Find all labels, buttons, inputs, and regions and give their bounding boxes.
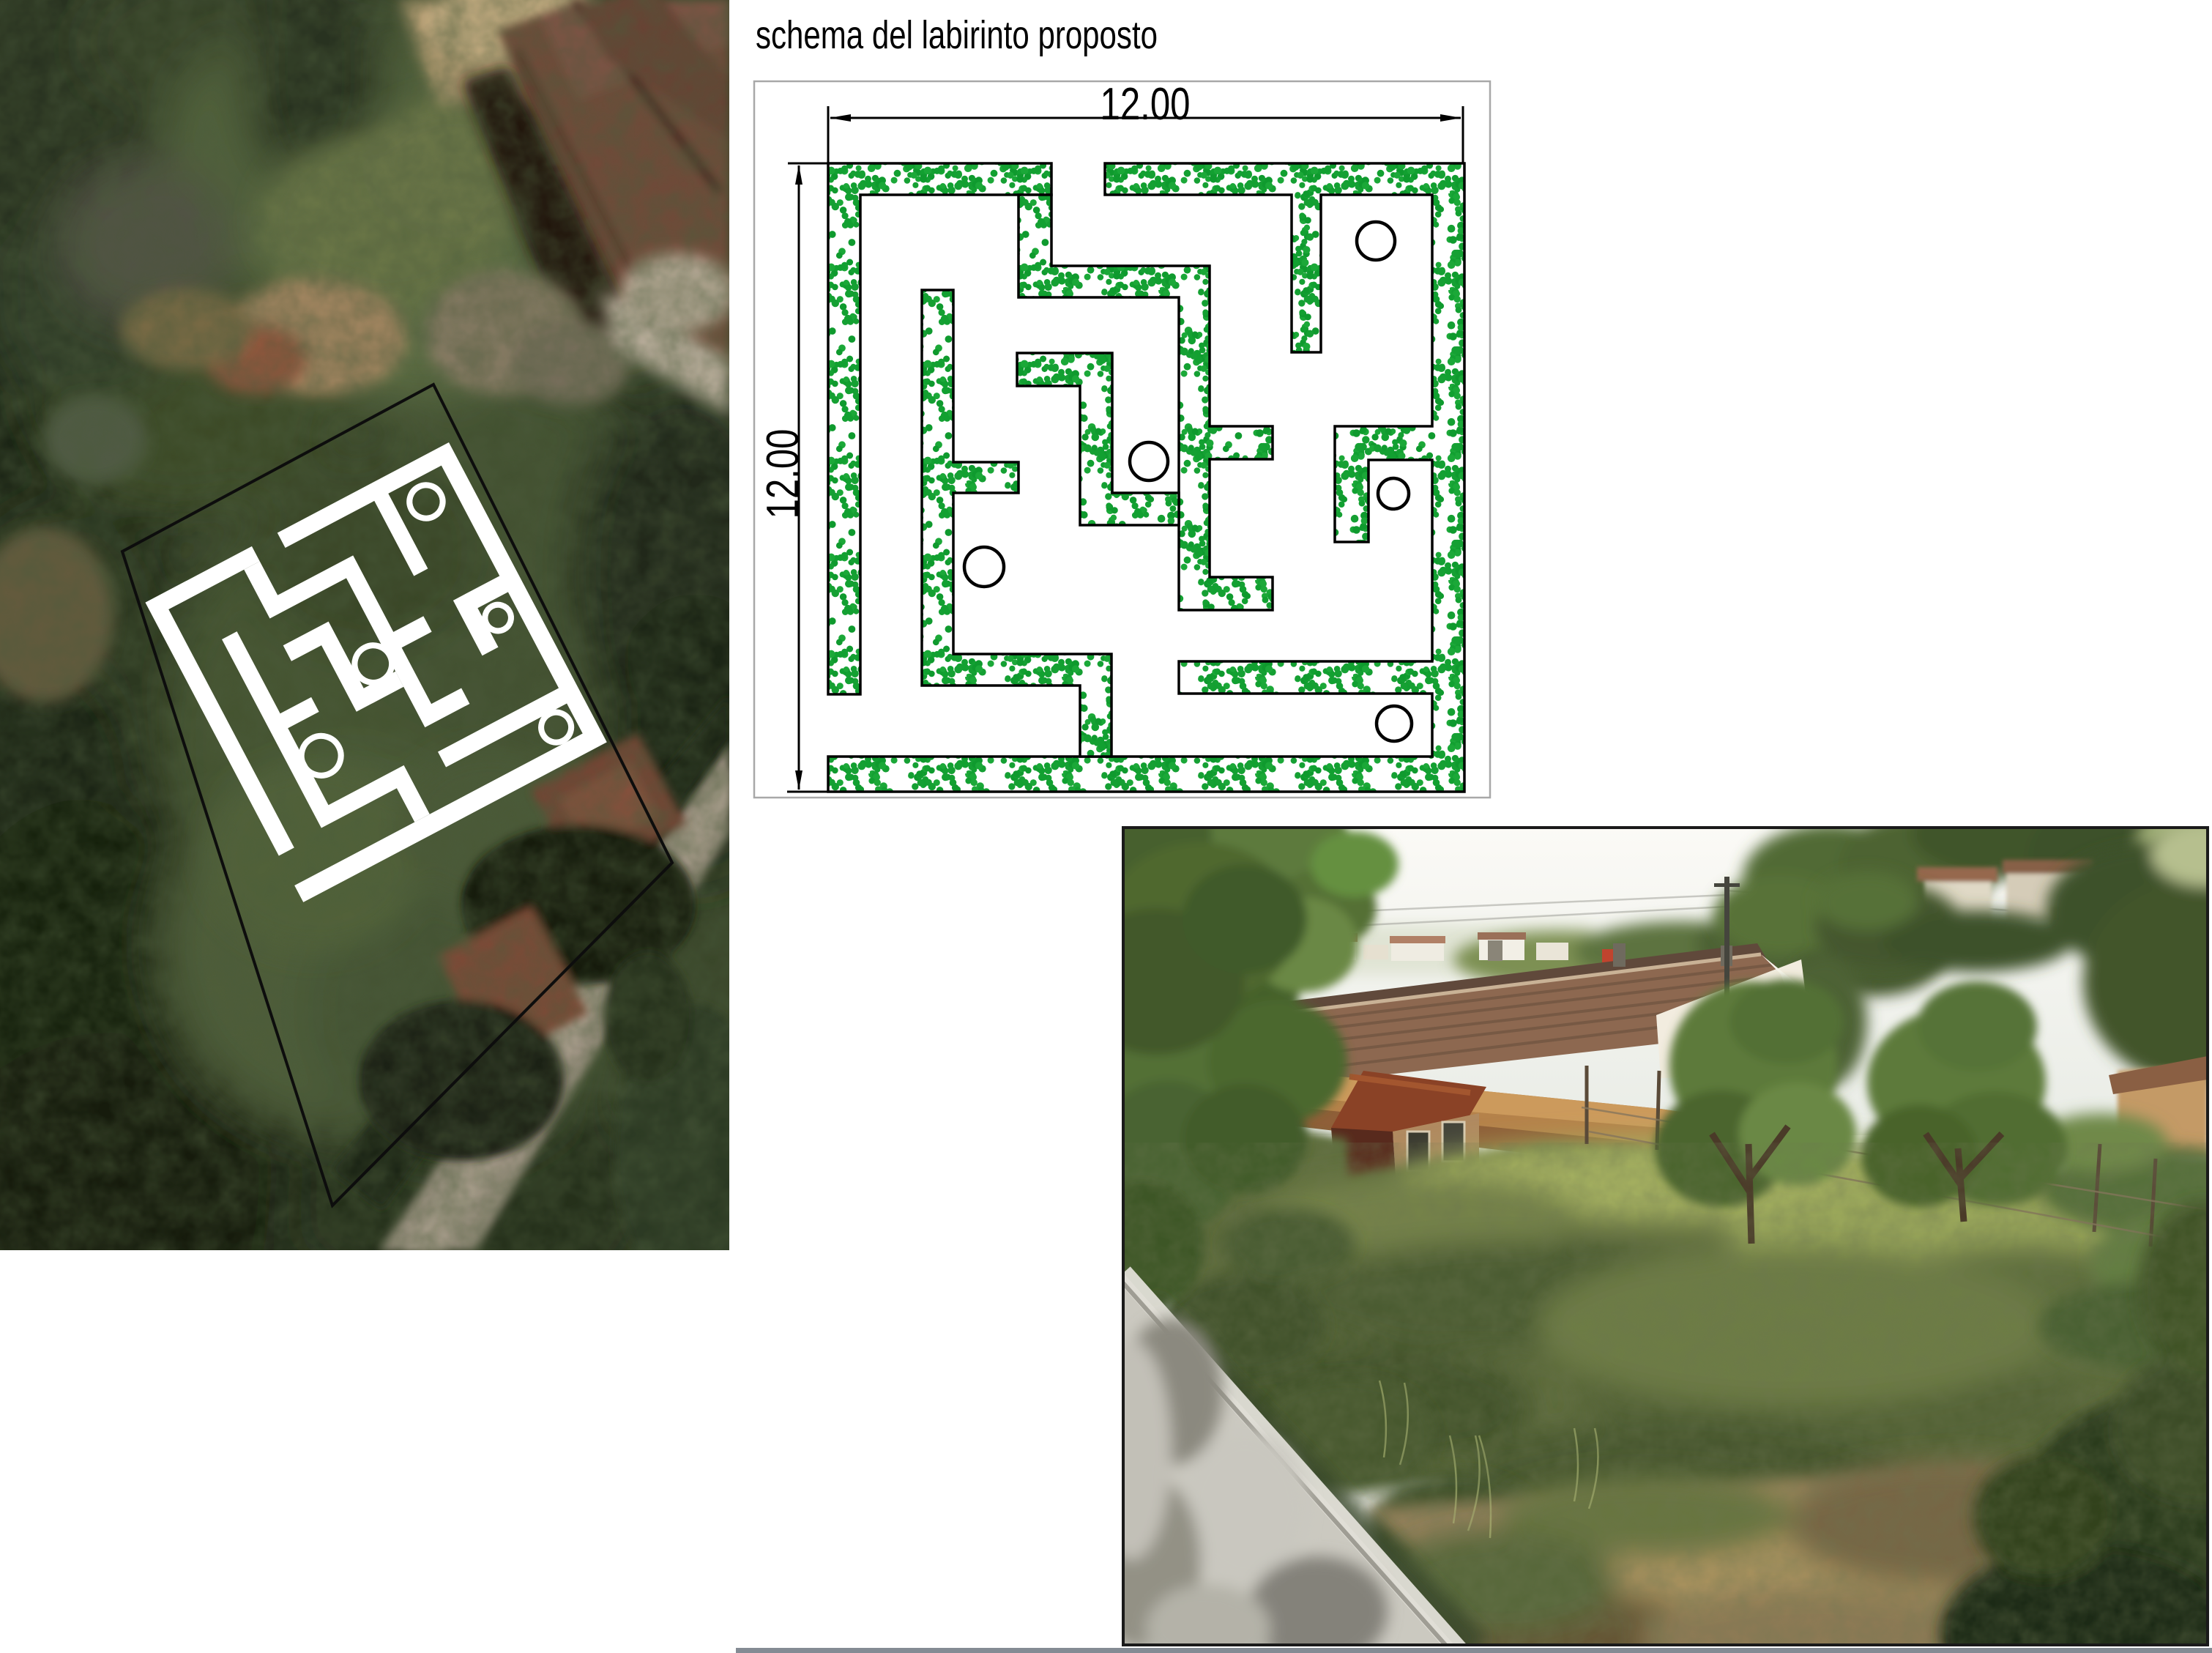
svg-text:12.00: 12.00 [758,429,808,519]
svg-text:12.00: 12.00 [1101,79,1191,130]
svg-text:schema del labirinto proposto: schema del labirinto proposto [756,13,1158,57]
